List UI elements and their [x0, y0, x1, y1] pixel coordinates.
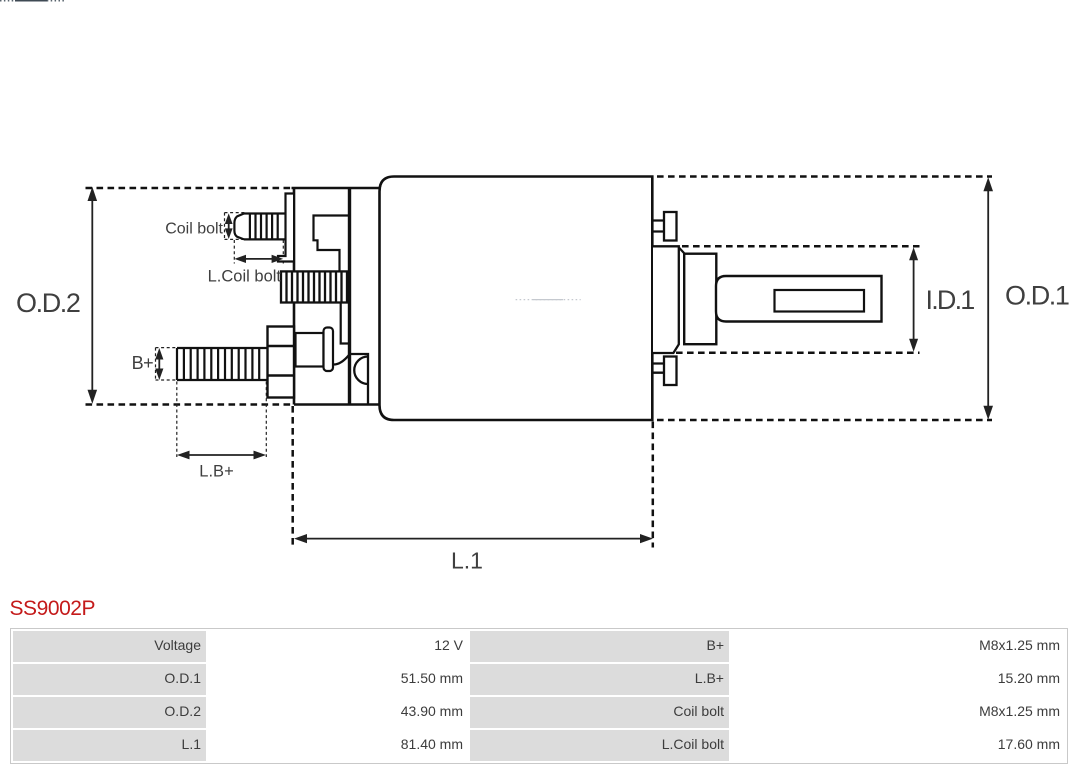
svg-text:L.1: L.1 [451, 548, 483, 574]
svg-text:Coil bolt: Coil bolt [165, 221, 223, 238]
svg-text:L.B+: L.B+ [199, 463, 233, 481]
svg-text:L.Coil bolt: L.Coil bolt [208, 268, 282, 286]
svg-text:O.D.1: O.D.1 [1005, 281, 1069, 311]
svg-text:I.D.1: I.D.1 [926, 285, 975, 315]
svg-text:O.D.2: O.D.2 [16, 288, 80, 318]
svg-text:B+: B+ [132, 353, 153, 373]
